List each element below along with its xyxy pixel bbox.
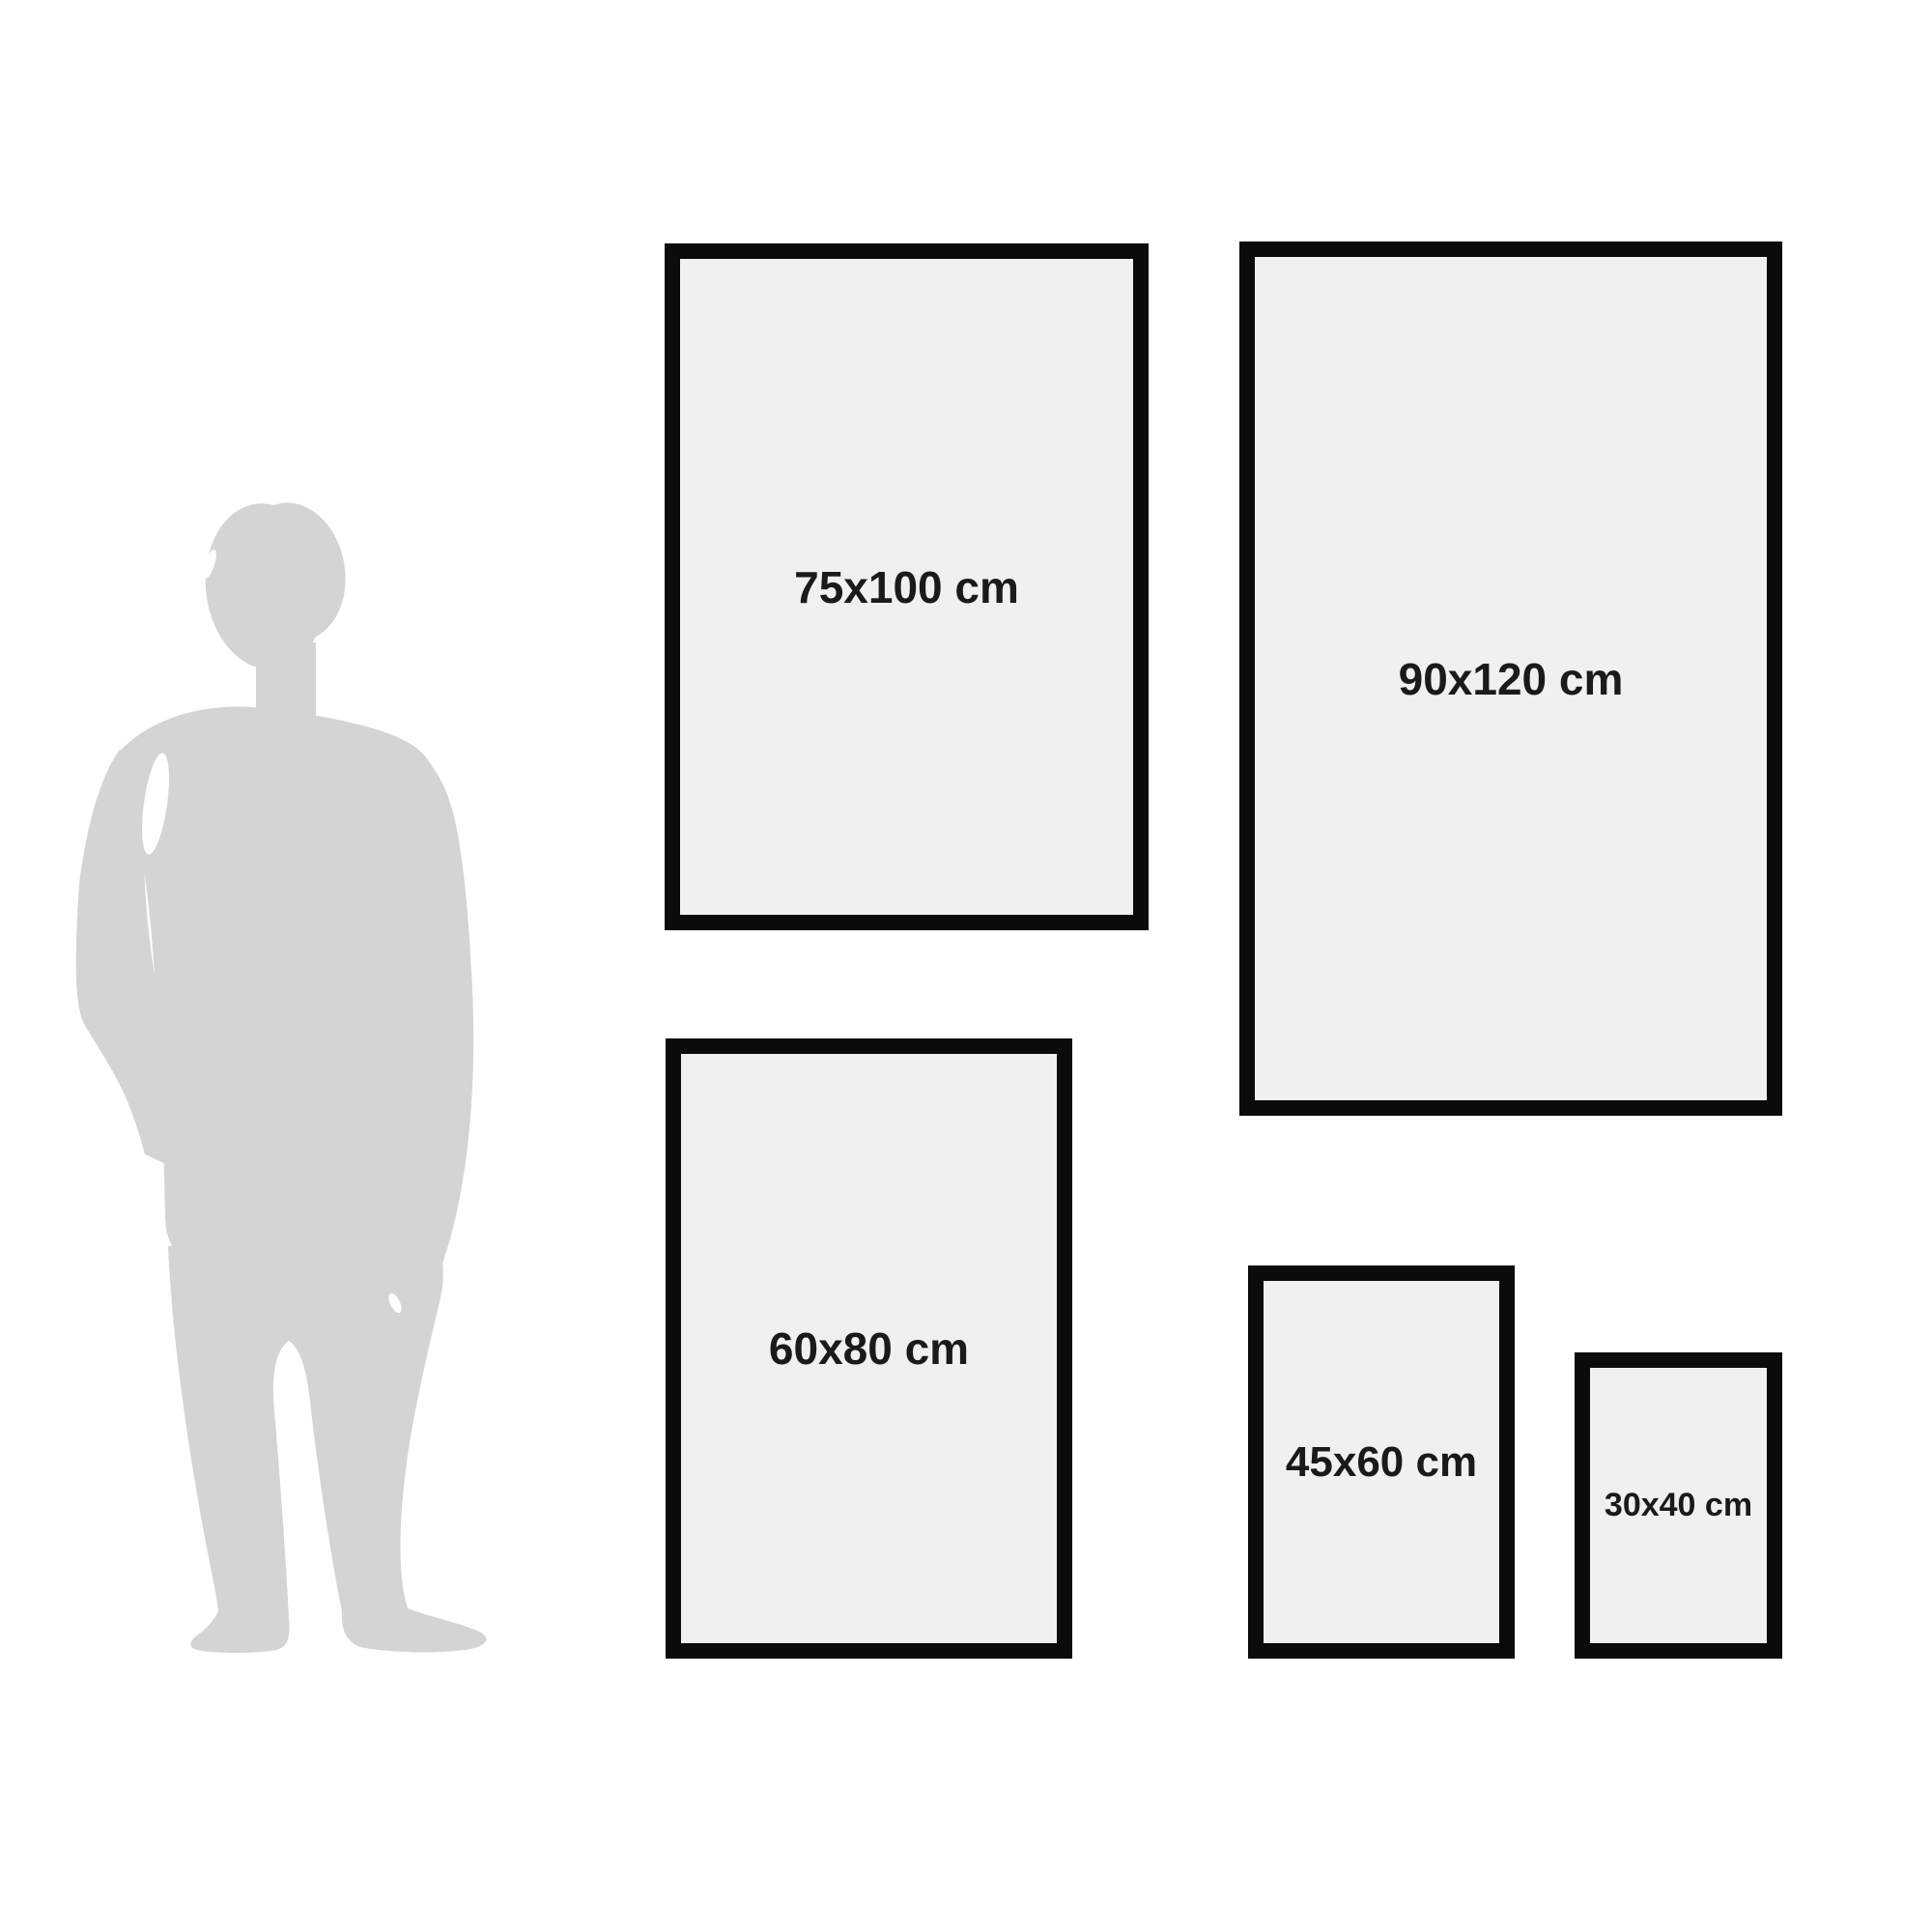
size-frame-75x100: 75x100 cm [665,243,1149,930]
person-silhouette [58,483,512,1671]
size-frame-30x40: 30x40 cm [1575,1352,1782,1659]
size-frame-60x80: 60x80 cm [666,1038,1072,1659]
size-label-75x100: 75x100 cm [794,561,1019,613]
size-comparison-diagram: 75x100 cm 90x120 cm 60x80 cm 45x60 cm 30… [0,0,1932,1932]
size-label-45x60: 45x60 cm [1286,1438,1477,1487]
size-frame-45x60: 45x60 cm [1248,1265,1515,1659]
size-frame-90x120: 90x120 cm [1239,241,1782,1116]
size-label-30x40: 30x40 cm [1605,1487,1752,1524]
size-label-60x80: 60x80 cm [769,1322,969,1375]
size-label-90x120: 90x120 cm [1399,653,1624,705]
